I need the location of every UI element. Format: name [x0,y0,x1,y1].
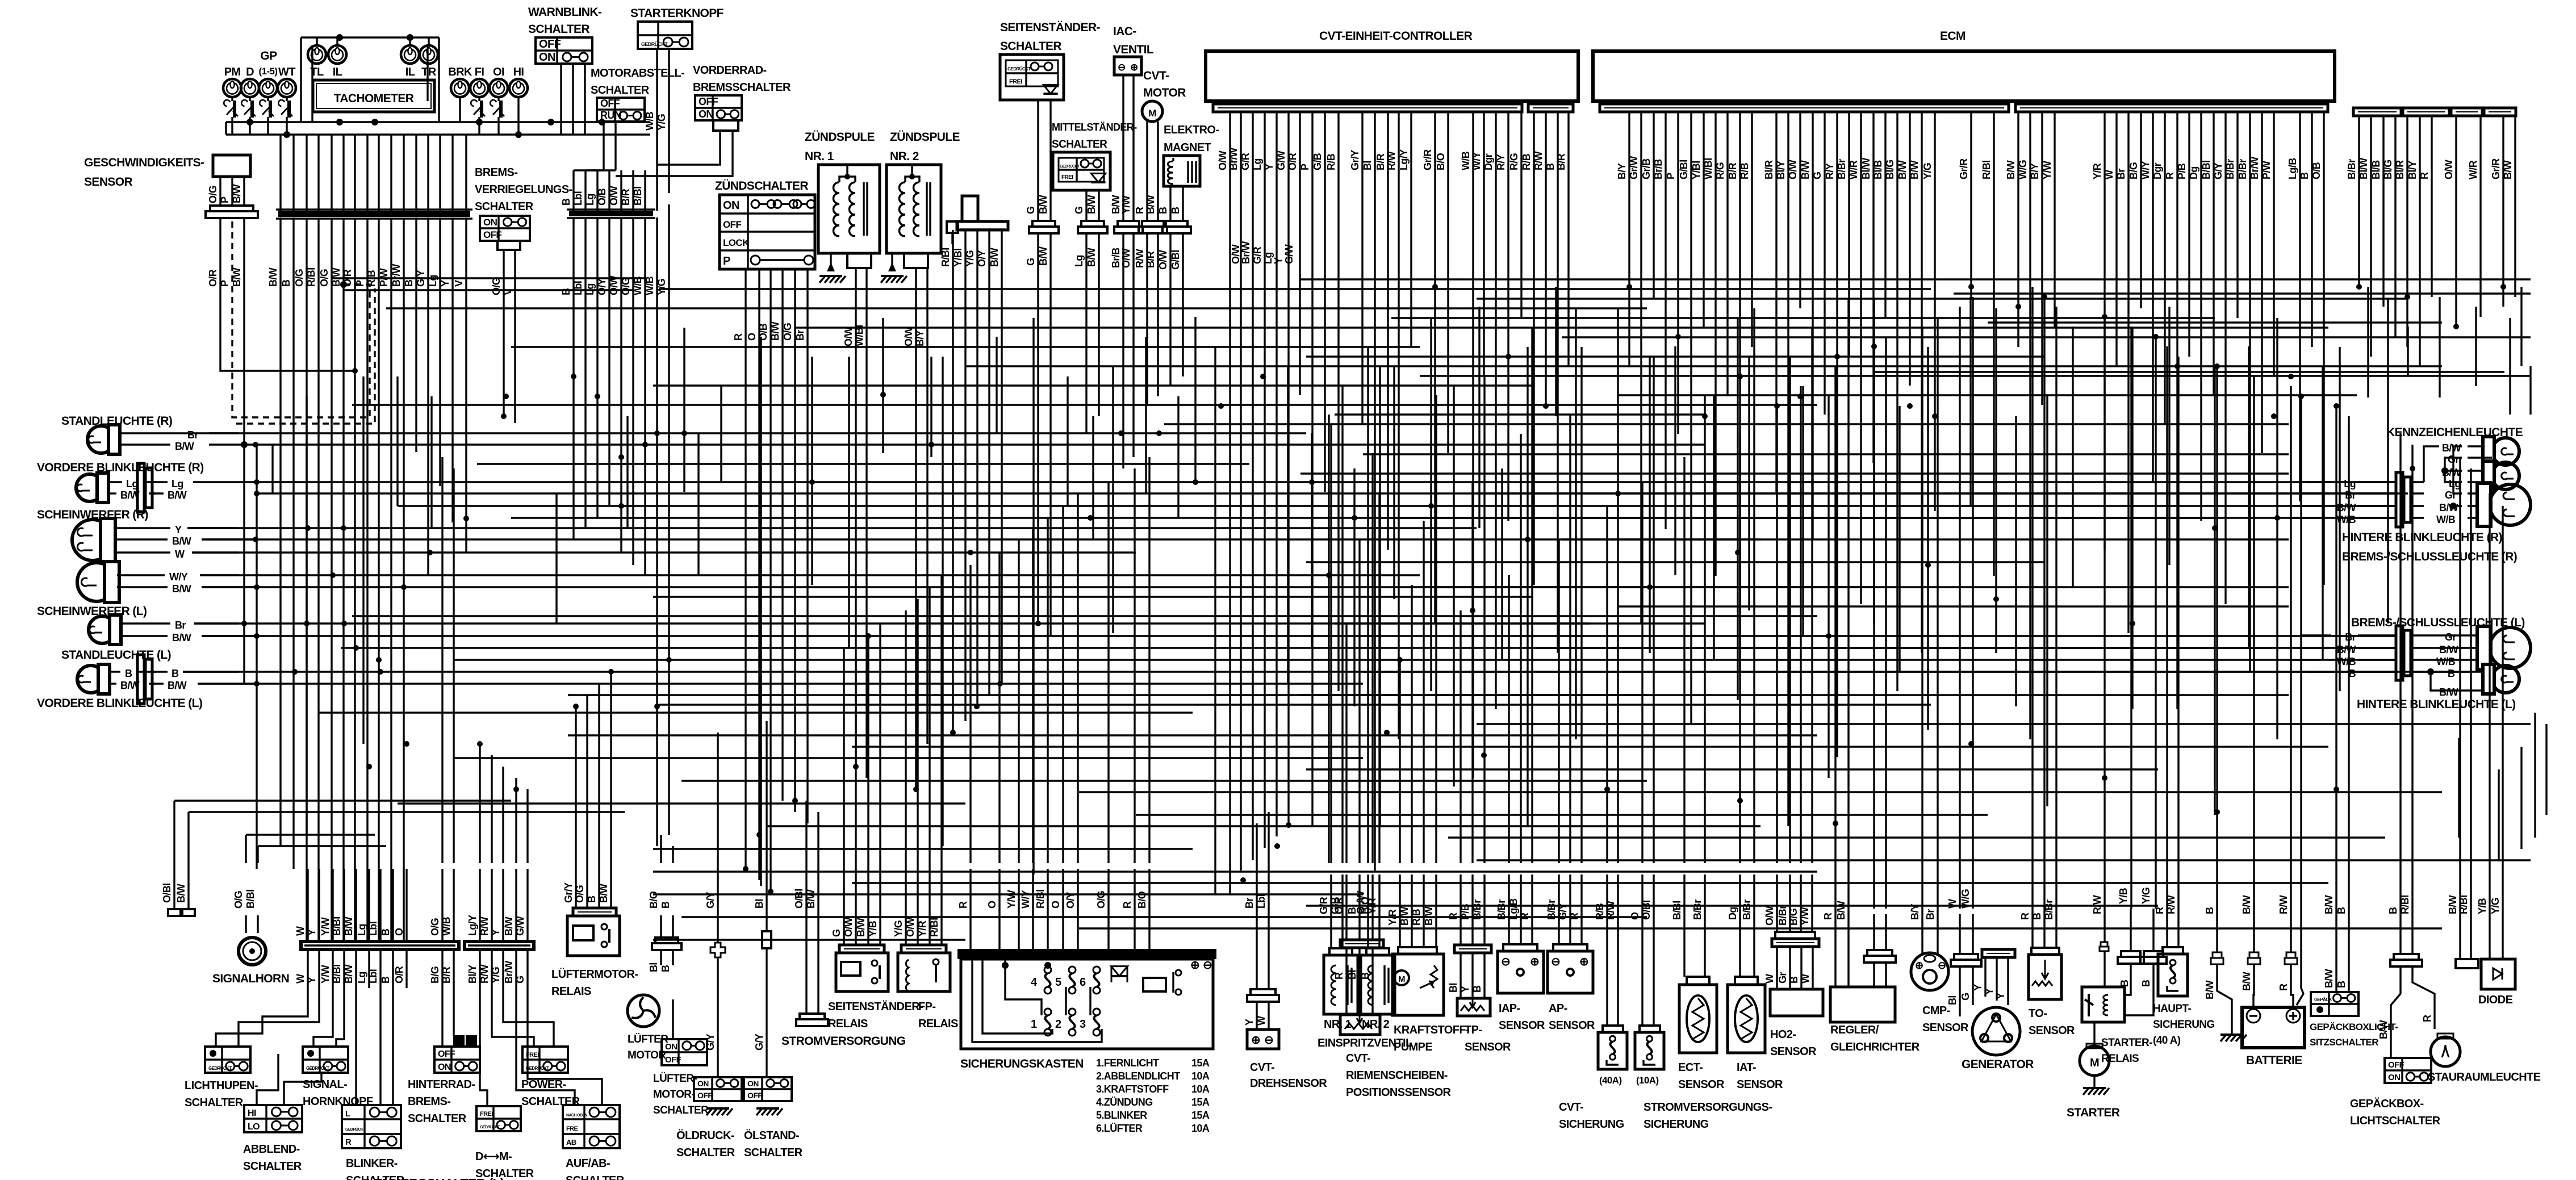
svg-text:O/G: O/G [491,278,502,295]
svg-text:ABBLEND-: ABBLEND- [243,1143,300,1156]
svg-text:4: 4 [1031,976,1038,989]
svg-text:Y/W: Y/W [1120,195,1132,214]
svg-text:OFF: OFF [747,1091,763,1100]
svg-text:O/W: O/W [2443,160,2454,179]
svg-text:O/B: O/B [596,188,608,206]
svg-text:R/Bl: R/Bl [2458,895,2469,914]
svg-text:Y/G: Y/G [490,967,501,984]
svg-text:O/G: O/G [429,918,441,936]
svg-text:STARTER-: STARTER- [2101,1037,2152,1049]
svg-text:⊖: ⊖ [1938,960,1946,971]
svg-text:P: P [219,280,231,287]
svg-text:Y/G: Y/G [1922,163,1933,179]
svg-text:GP: GP [260,49,277,62]
svg-text:SICHERUNGSKASTEN: SICHERUNGSKASTEN [960,1057,1084,1070]
svg-text:B: B [2448,668,2455,679]
svg-text:Gr/Y: Gr/Y [563,882,574,903]
svg-text:GESCHWINDIGKEITS-: GESCHWINDIGKEITS- [84,156,204,169]
svg-text:OFF: OFF [438,1049,455,1059]
svg-text:HINTERRAD-: HINTERRAD- [408,1078,475,1091]
svg-text:W/G: W/G [2017,160,2029,179]
svg-text:W/B: W/B [1460,151,1471,170]
svg-text:V: V [453,280,465,287]
svg-text:Dg: Dg [1727,907,1738,920]
svg-text:6: 6 [1080,976,1086,989]
svg-text:LO: LO [248,1122,260,1132]
svg-text:O/W: O/W [1120,248,1132,268]
svg-text:OFF: OFF [723,219,741,230]
svg-text:B/R: B/R [620,189,632,206]
svg-text:B: B [2299,172,2310,179]
svg-text:W: W [295,974,306,984]
svg-text:R/Bl: R/Bl [929,918,940,937]
svg-text:FREI: FREI [1061,174,1073,181]
svg-text:O/B: O/B [758,323,769,341]
svg-text:B/Br: B/Br [1692,899,1703,920]
svg-text:O/Bl: O/Bl [793,889,805,909]
svg-text:ELEKTRO-: ELEKTRO- [1164,124,1219,136]
svg-text:D: D [246,66,254,78]
svg-text:W: W [1947,899,1958,909]
svg-text:R/Bl: R/Bl [1035,889,1046,909]
svg-text:⊖: ⊖ [1118,62,1126,73]
svg-text:Bl/B: Bl/B [1872,160,1884,179]
svg-text:B: B [2204,907,2215,914]
svg-text:G/Y: G/Y [754,1033,765,1051]
svg-text:B/W: B/W [231,184,242,203]
svg-text:(40A): (40A) [1599,1075,1622,1086]
svg-text:Y: Y [306,977,317,984]
svg-text:BREMS-/SCHLUSSLEUCHTE (R): BREMS-/SCHLUSSLEUCHTE (R) [2342,550,2517,563]
svg-text:W/Y: W/Y [169,571,188,583]
svg-text:B/W: B/W [343,917,354,936]
svg-text:O: O [1629,912,1641,920]
svg-text:B/W: B/W [2439,687,2458,698]
svg-text:O/R: O/R [207,269,219,287]
svg-text:R/W: R/W [2278,895,2289,914]
svg-text:IL: IL [405,66,415,78]
svg-text:POSITIONSSENSOR: POSITIONSSENSOR [1346,1086,1452,1099]
svg-text:Br: Br [2115,169,2127,179]
svg-text:Bl/G: Bl/G [1884,160,1896,179]
svg-text:15A: 15A [1191,1097,1210,1108]
svg-text:Lbl: Lbl [1256,894,1267,909]
svg-text:O/W: O/W [903,327,914,346]
svg-text:SEITENSTÄNDER-: SEITENSTÄNDER- [1000,21,1101,34]
svg-text:R: R [2278,984,2289,991]
svg-text:SCHALTER: SCHALTER [185,1097,244,1109]
svg-text:FRE: FRE [566,1125,578,1132]
svg-text:Lg: Lg [1252,158,1263,170]
svg-text:R/W: R/W [2092,895,2103,914]
svg-text:R: R [733,333,744,341]
svg-text:B/W: B/W [2241,972,2252,991]
svg-text:FREI: FREI [480,1111,493,1118]
svg-text:Lg/Y: Lg/Y [467,915,478,936]
svg-text:SENSOR: SENSOR [1737,1078,1783,1091]
svg-text:SENSOR: SENSOR [1499,1019,1545,1032]
svg-text:Dgr: Dgr [1483,153,1494,170]
svg-text:ECM: ECM [1940,30,1966,43]
svg-text:HINTERE BLINKLEUCHTE (L): HINTERE BLINKLEUCHTE (L) [2357,698,2516,711]
svg-text:CVT-: CVT- [1143,69,1169,82]
svg-text:Bl/B: Bl/B [2370,160,2382,179]
svg-text:VORDERE BLINKLEUCHTE (R): VORDERE BLINKLEUCHTE (R) [37,461,204,474]
svg-text:Y/W: Y/W [1799,907,1810,926]
svg-text:P: P [354,280,366,287]
svg-text:B: B [2119,980,2130,987]
svg-text:Gr/W: Gr/W [1628,156,1640,179]
svg-text:⊖: ⊖ [1203,959,1212,972]
svg-text:DIODE: DIODE [2478,994,2513,1006]
svg-text:B/Br: B/Br [2224,159,2236,179]
svg-text:B: B [586,896,597,903]
svg-text:POWER-: POWER- [521,1078,566,1091]
svg-text:Bl/Y: Bl/Y [1775,161,1787,179]
svg-text:NACH OBEN: NACH OBEN [566,1114,588,1118]
svg-text:⊕: ⊕ [1190,959,1199,972]
svg-text:B/W: B/W [1086,195,1097,214]
svg-text:Bl/G: Bl/G [2382,160,2394,179]
svg-text:HI: HI [513,66,524,78]
svg-text:SCHALTER: SCHALTER [528,23,589,36]
svg-text:R/B: R/B [1739,162,1750,179]
svg-text:LICHTHUPEN-: LICHTHUPEN- [185,1079,258,1092]
svg-text:O/G: O/G [620,278,632,295]
svg-text:KRAFTSTOFF-: KRAFTSTOFF- [1394,1024,1469,1036]
svg-text:STANDLEUCHTE (L): STANDLEUCHTE (L) [61,648,171,662]
svg-text:B/W: B/W [1897,160,1908,179]
svg-text:CVT-: CVT- [1559,1101,1583,1114]
svg-text:R/G: R/G [1714,162,1726,179]
svg-text:B: B [172,668,179,679]
svg-text:B: B [1157,207,1169,214]
svg-text:MOTOR-: MOTOR- [653,1089,695,1101]
svg-text:SCHALTER: SCHALTER [1000,40,1061,53]
svg-text:B/W: B/W [2378,1020,2389,1039]
svg-text:B/G: B/G [1788,909,1799,926]
svg-text:OFF: OFF [539,38,561,51]
svg-text:B/Bl: B/Bl [2201,160,2212,179]
svg-text:O: O [1050,901,1061,909]
svg-text:Y/W: Y/W [1006,890,1017,909]
svg-text:O: O [986,901,998,909]
svg-text:ECT-: ECT- [1678,1061,1703,1074]
svg-text:B/R: B/R [1375,153,1386,170]
svg-text:IL: IL [333,66,342,78]
svg-text:SCHALTER: SCHALTER [1052,139,1107,150]
svg-text:SENSOR: SENSOR [1549,1019,1595,1032]
svg-text:P: P [723,255,730,267]
svg-text:HO2-: HO2- [1770,1028,1796,1041]
svg-text:Bl/Y: Bl/Y [2407,161,2418,179]
svg-text:Lbl: Lbl [367,922,379,936]
svg-text:Lg/Y: Lg/Y [1398,149,1410,170]
svg-text:15A: 15A [1191,1057,1210,1069]
svg-text:Bl/W: Bl/W [2358,158,2369,179]
svg-text:WT: WT [278,66,295,78]
svg-text:DREHSENSOR: DREHSENSOR [1250,1077,1327,1090]
svg-text:OFF: OFF [483,229,501,240]
svg-text:W/B: W/B [2436,514,2456,525]
svg-text:Y: Y [1244,1019,1255,1026]
svg-text:Gr/R: Gr/R [2490,158,2502,179]
svg-text:SIGNALHORN: SIGNALHORN [212,972,289,985]
svg-text:SICHERUNG: SICHERUNG [1644,1118,1709,1131]
svg-text:SIGNAL-: SIGNAL- [303,1078,347,1091]
svg-text:Lg: Lg [2449,478,2461,489]
svg-text:B/W: B/W [175,441,194,452]
svg-text:B/W: B/W [2447,895,2458,914]
svg-text:Bl: Bl [754,899,765,909]
svg-text:STARTER: STARTER [2067,1106,2120,1119]
svg-text:B/W: B/W [1086,248,1097,267]
svg-text:GEPÄCK: GEPÄCK [2314,997,2332,1002]
svg-text:Lbl: Lbl [572,191,584,206]
svg-text:B/Y: B/Y [1616,163,1628,179]
svg-text:B/Y: B/Y [2029,163,2040,179]
svg-text:Bl/W: Bl/W [1860,158,1872,179]
svg-text:G/Bl: G/Bl [1678,160,1690,179]
svg-text:R/Bl: R/Bl [940,248,951,267]
svg-text:G: G [831,930,842,937]
svg-text:R/Bl: R/Bl [2399,895,2411,914]
svg-text:M: M [1398,974,1405,984]
svg-text:Y: Y [440,280,451,287]
svg-text:B/W: B/W [989,248,1000,267]
svg-text:B/W: B/W [2502,160,2514,179]
svg-text:B: B [1545,163,1556,170]
svg-text:Gr/Y: Gr/Y [1349,150,1361,170]
svg-text:STARTERKNOPF: STARTERKNOPF [630,7,724,20]
svg-text:B/Bl: B/Bl [632,186,643,206]
svg-text:B/R: B/R [1727,162,1738,179]
svg-text:SCHALTER: SCHALTER [676,1146,735,1159]
svg-text:G/Y: G/Y [2213,162,2224,179]
svg-text:B: B [281,279,292,287]
svg-text:Y/B: Y/B [2118,888,2129,904]
svg-text:NR. 2: NR. 2 [890,150,919,163]
svg-text:W/R: W/R [1848,160,1859,179]
svg-text:B/W: B/W [2241,895,2252,914]
svg-text:W/Y: W/Y [1020,890,1031,909]
svg-text:B/Br: B/Br [1777,905,1788,926]
svg-text:ON: ON [2388,1073,2400,1082]
svg-text:Br: Br [1244,898,1255,909]
svg-text:TR: TR [421,66,437,78]
svg-text:ON: ON [723,199,739,212]
svg-text:Br/B: Br/B [1110,248,1122,268]
svg-text:2.ABBLENDLICHT: 2.ABBLENDLICHT [1096,1070,1180,1082]
svg-text:R: R [1134,207,1145,214]
svg-text:L: L [345,1109,350,1119]
svg-text:SCHALTER: SCHALTER [475,200,534,213]
svg-text:G/W: G/W [515,916,526,936]
svg-text:BLINKER-: BLINKER- [346,1157,398,1170]
svg-text:B: B [561,198,572,206]
svg-text:GEDRÜCKT: GEDRÜCKT [1007,66,1031,72]
svg-text:B: B [1471,985,1483,993]
svg-text:B/Br: B/Br [2043,899,2055,920]
svg-text:O/W: O/W [843,917,854,937]
svg-text:B/W: B/W [343,964,354,984]
svg-text:B/R: B/R [1555,153,1567,170]
svg-text:(40 A): (40 A) [2153,1035,2181,1047]
svg-text:MOTORABSTELL-: MOTORABSTELL- [591,67,684,79]
svg-text:R: R [2164,172,2176,179]
svg-text:W/B: W/B [644,276,655,295]
svg-text:R: R [2422,1015,2433,1022]
svg-text:B/G: B/G [2128,162,2139,179]
svg-text:B/W: B/W [172,583,191,595]
svg-text:Lg: Lg [584,194,596,206]
svg-text:Br/W: Br/W [2249,157,2260,179]
svg-text:GEDRÜCKT: GEDRÜCKT [345,1127,366,1132]
svg-text:HI: HI [248,1108,256,1118]
svg-text:Y/B: Y/B [867,920,879,937]
svg-text:RIEMENSCHEIBEN-: RIEMENSCHEIBEN- [1346,1069,1448,1082]
svg-text:P: P [219,196,231,203]
svg-text:FREI: FREI [1009,78,1022,85]
svg-text:Y: Y [1273,257,1284,264]
svg-text:G: G [1812,172,1823,179]
svg-text:O/R: O/R [1287,153,1298,170]
svg-text:Y/R: Y/R [917,920,928,937]
svg-text:ON: ON [438,1062,451,1072]
svg-text:VORDERE BLINKLEUCHTE (L): VORDERE BLINKLEUCHTE (L) [37,697,202,710]
svg-text:R: R [1122,901,1133,909]
svg-text:SENSOR: SENSOR [1922,1022,1969,1034]
svg-text:B/W: B/W [503,917,515,936]
svg-text:G: G [1025,258,1036,266]
svg-text:IAC-: IAC- [1113,25,1136,38]
svg-text:TL: TL [310,66,324,78]
svg-text:HAUPT-: HAUPT- [2153,1003,2191,1015]
svg-text:R: R [345,1137,352,1147]
svg-text:G/W: G/W [1276,150,1287,170]
svg-text:(10A): (10A) [1636,1075,1659,1086]
svg-text:B/W: B/W [267,267,279,287]
svg-text:Y: Y [175,524,182,535]
svg-text:O/G: O/G [207,186,219,203]
svg-text:B/W: B/W [1038,246,1049,266]
svg-text:B/W: B/W [805,889,817,909]
svg-text:Lg/B: Lg/B [2287,158,2298,179]
svg-text:G/B: G/B [1312,153,1323,170]
svg-text:O/W: O/W [1230,244,1241,264]
svg-text:B/W: B/W [172,535,191,547]
svg-text:TP-: TP- [1465,1024,1482,1036]
svg-text:B/W: B/W [1110,195,1122,214]
svg-text:B/Br: B/Br [2237,159,2248,179]
svg-text:Bl/Y: Bl/Y [467,965,478,984]
svg-text:B: B [380,928,391,936]
svg-text:⊖: ⊖ [1501,956,1510,968]
svg-text:CVT-EINHEIT-CONTROLLER: CVT-EINHEIT-CONTROLLER [1319,30,1473,43]
svg-text:SICHERUNG: SICHERUNG [1559,1118,1624,1131]
svg-text:B: B [380,976,391,984]
svg-text:R/B: R/B [1521,153,1532,170]
svg-text:B/O: B/O [1435,153,1446,170]
svg-text:D⟷M-: D⟷M- [475,1150,512,1163]
svg-text:Y/G: Y/G [964,250,976,267]
svg-text:W/B: W/B [441,917,452,936]
svg-text:B/W: B/W [1399,906,1410,926]
svg-text:R/Y: R/Y [1824,163,1835,179]
svg-text:B/W: B/W [1423,906,1435,926]
svg-text:Br/W: Br/W [1228,148,1239,170]
svg-text:SITZSCHALTER: SITZSCHALTER [2310,1037,2378,1048]
svg-text:Br: Br [175,620,186,631]
svg-text:10A: 10A [1191,1070,1210,1082]
svg-text:B/W: B/W [2323,895,2335,914]
svg-text:B: B [2387,907,2399,914]
svg-text:10A: 10A [1191,1123,1210,1134]
svg-text:3: 3 [1080,1018,1086,1031]
svg-text:B/W: B/W [1835,901,1847,920]
svg-text:HINTERE BLINKLEUCHTE (R): HINTERE BLINKLEUCHTE (R) [2342,531,2502,544]
svg-text:Y: Y [1984,988,1995,995]
svg-text:15A: 15A [1191,1110,1210,1121]
svg-text:W: W [2104,170,2115,179]
svg-text:Gr: Gr [2445,489,2456,501]
svg-text:GEPÄCKBOX-: GEPÄCKBOX- [2350,1097,2424,1110]
svg-text:Br: Br [794,330,806,341]
svg-text:FI: FI [475,66,484,78]
svg-text:Y/W: Y/W [320,965,331,984]
svg-text:SCHEINWERFER (L): SCHEINWERFER (L) [37,605,147,618]
svg-text:R/W: R/W [2165,895,2177,914]
svg-text:B/W: B/W [2439,644,2458,655]
svg-text:Lg: Lg [356,924,367,936]
svg-text:5: 5 [1055,976,1061,989]
svg-text:W: W [175,549,185,560]
svg-text:B/W: B/W [2323,969,2335,988]
svg-text:B: B [1170,207,1181,214]
svg-text:⊖: ⊖ [1264,1034,1273,1047]
svg-text:B/Br: B/Br [1741,899,1753,920]
svg-text:SENSOR: SENSOR [1465,1041,1511,1053]
svg-text:R: R [2019,913,2031,920]
svg-text:B/Bl: B/Bl [1671,901,1683,920]
svg-text:⊕: ⊕ [1915,960,1923,971]
svg-text:Y: Y [1460,986,1471,993]
svg-text:B: B [660,901,671,909]
svg-text:G: G [1073,207,1085,214]
svg-text:R/B: R/B [1325,153,1337,170]
svg-text:B: B [561,288,572,295]
svg-text:Br/W: Br/W [503,961,515,984]
svg-text:R: R [957,901,969,909]
svg-text:O/G: O/G [233,891,244,909]
svg-text:6.LÜFTER: 6.LÜFTER [1096,1123,1143,1134]
svg-text:B/W: B/W [172,632,191,643]
svg-text:Br/W: Br/W [1240,241,1252,264]
svg-text:Bl: Bl [1362,161,1373,170]
svg-text:Y: Y [1995,993,2006,999]
svg-text:P: P [1299,164,1311,170]
svg-text:SENSOR: SENSOR [2029,1024,2075,1037]
svg-text:W/Y: W/Y [2140,161,2151,179]
svg-text:O: O [746,333,758,341]
svg-text:Bl: Bl [1947,995,1958,1005]
svg-text:TO-: TO- [2029,1007,2047,1020]
svg-text:W/R: W/R [2468,160,2479,179]
svg-text:O/W: O/W [1217,150,1228,170]
svg-text:B/G: B/G [429,966,441,984]
svg-text:B/W: B/W [1800,160,1811,179]
svg-text:5.BLINKER: 5.BLINKER [1096,1110,1147,1121]
